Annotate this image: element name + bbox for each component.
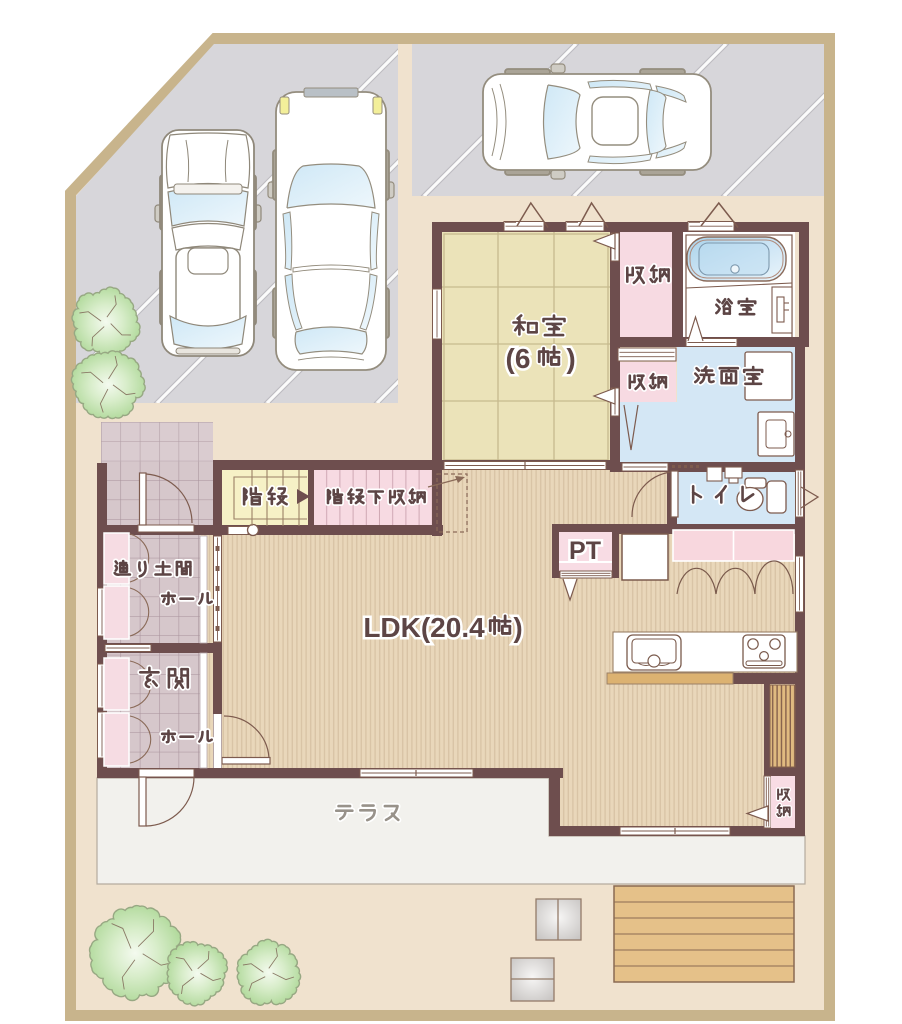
- svg-text:): ): [513, 612, 522, 643]
- svg-text:): ): [566, 343, 575, 374]
- svg-text:PT: PT: [569, 537, 601, 565]
- svg-text:LDK(20.4: LDK(20.4: [363, 612, 485, 643]
- svg-text:(6: (6: [506, 343, 531, 374]
